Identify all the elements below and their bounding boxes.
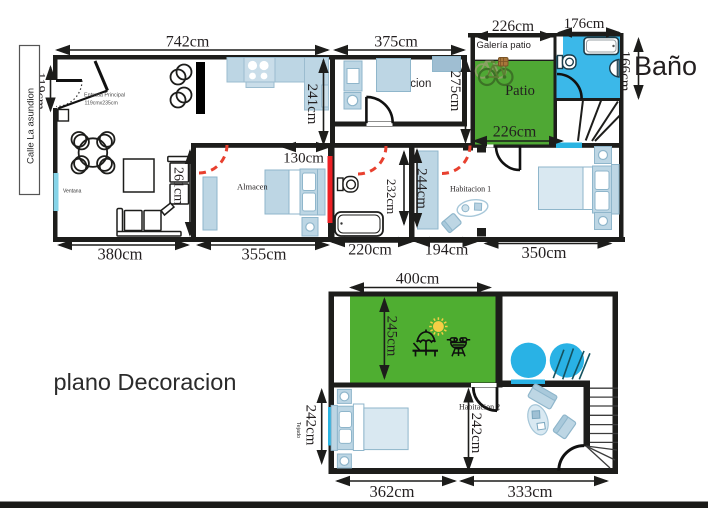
svg-text:232cm: 232cm [384, 179, 399, 214]
svg-text:166cm: 166cm [617, 51, 633, 92]
svg-text:355cm: 355cm [242, 245, 287, 264]
svg-text:194cm: 194cm [425, 242, 469, 259]
svg-text:Baño: Baño [634, 51, 697, 81]
svg-text:350cm: 350cm [522, 243, 567, 262]
svg-text:Galería patio: Galería patio [477, 40, 531, 51]
svg-text:Entrada Principal: Entrada Principal [84, 93, 125, 99]
svg-text:Habitacion 1: Habitacion 1 [450, 185, 491, 194]
svg-text:362cm: 362cm [370, 482, 415, 501]
svg-text:Patio: Patio [505, 83, 535, 99]
svg-text:261cm: 261cm [171, 167, 186, 205]
svg-text:plano Decoracion: plano Decoracion [54, 369, 237, 395]
svg-text:244cm: 244cm [414, 168, 430, 209]
svg-text:242cm: 242cm [303, 405, 319, 446]
svg-text:Almacen: Almacen [237, 182, 268, 192]
svg-text:Ventana: Ventana [63, 189, 82, 195]
svg-text:130cm: 130cm [283, 151, 324, 167]
svg-text:Habitacion 2: Habitacion 2 [459, 403, 500, 412]
svg-text:375cm: 375cm [374, 34, 418, 51]
svg-text:119cmx235cm: 119cmx235cm [85, 101, 118, 107]
svg-text:220cm: 220cm [348, 242, 392, 259]
svg-text:241cm: 241cm [304, 84, 320, 125]
svg-text:380cm: 380cm [98, 245, 143, 264]
svg-text:242cm: 242cm [468, 413, 484, 454]
svg-text:333cm: 333cm [508, 482, 553, 501]
svg-text:176cm: 176cm [564, 16, 605, 32]
svg-text:245cm: 245cm [384, 316, 400, 357]
svg-text:Calle La asundion: Calle La asundion [26, 88, 37, 164]
svg-text:275cm: 275cm [447, 71, 463, 112]
svg-text:226cm: 226cm [492, 18, 534, 35]
svg-text:226cm: 226cm [493, 124, 537, 141]
svg-text:Tejado: Tejado [295, 422, 301, 438]
svg-text:400cm: 400cm [396, 271, 440, 288]
svg-text:742cm: 742cm [166, 34, 210, 51]
